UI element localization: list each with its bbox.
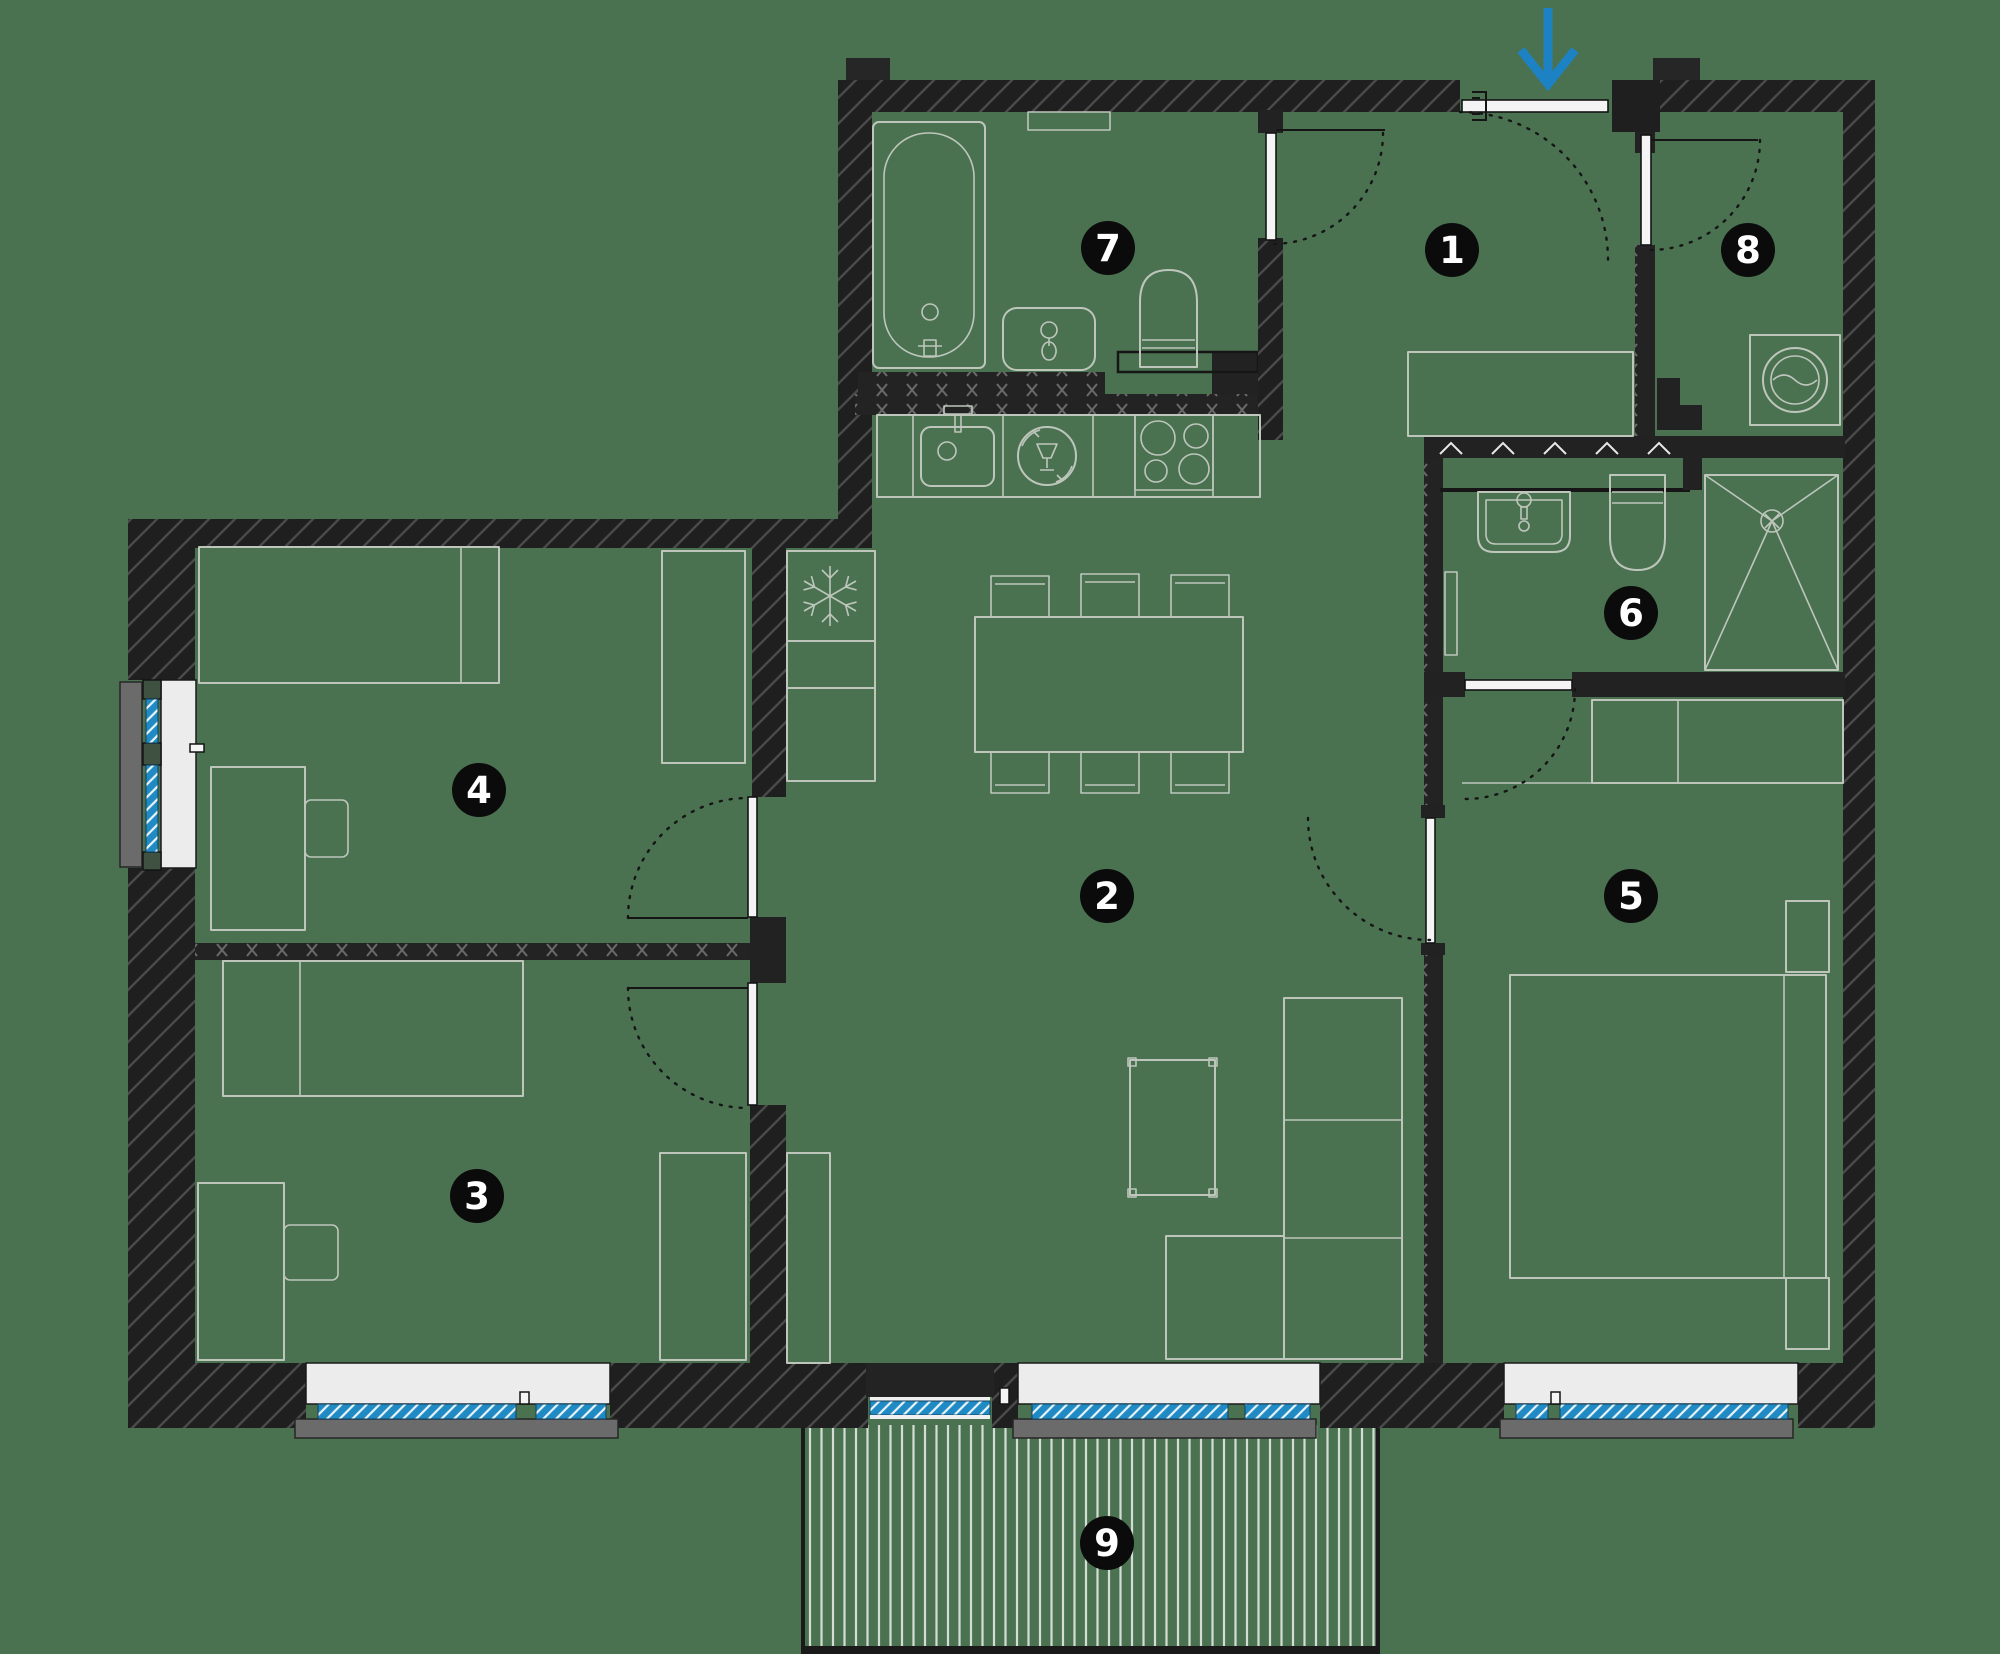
room-badge-7: 7 [1081, 221, 1135, 275]
window-handle [520, 1392, 529, 1404]
partition-living-room5 [1424, 697, 1443, 805]
room-badge-3: 3 [450, 1169, 504, 1223]
window-room3 [295, 1363, 618, 1438]
bath6-pillar [1683, 458, 1702, 490]
partition-bath7 [858, 372, 1105, 394]
floor-plan-page: 1 2 3 4 5 6 7 8 [0, 0, 2000, 1654]
window-slider-living [1000, 1363, 1320, 1438]
partition-central-lower [750, 1105, 786, 1363]
exterior-wall-top-left [838, 80, 1460, 112]
room-number-label: 5 [1618, 875, 1644, 918]
door-jamb [1421, 943, 1445, 955]
entrance-column [1612, 80, 1660, 132]
partition-bath6-bottom [1572, 672, 1845, 697]
partition-living-room5 [1424, 955, 1443, 1363]
door-jamb [1421, 805, 1445, 818]
partition-bath6-top [1424, 436, 1845, 458]
room-number-label: 8 [1735, 229, 1761, 272]
window-left [120, 680, 204, 870]
room-number-label: 9 [1094, 1522, 1120, 1565]
partition-room8 [1635, 245, 1655, 436]
partition-central-jamb [750, 917, 786, 983]
exterior-wall-bottom [1320, 1363, 1504, 1428]
partition-central-upper [752, 548, 786, 797]
room-number-label: 4 [466, 769, 492, 812]
floor-plan-canvas: 1 2 3 4 5 6 7 8 [0, 0, 2000, 1654]
window-room5 [1500, 1363, 1798, 1438]
exterior-wall-left [128, 868, 195, 1428]
room-badge-5: 5 [1604, 869, 1658, 923]
partition-bath6-bottom [1424, 672, 1465, 697]
window-fixed [866, 1363, 994, 1419]
room-number-label: 2 [1094, 875, 1120, 918]
room-badge-6: 6 [1604, 586, 1658, 640]
room-number-label: 1 [1439, 229, 1465, 272]
exterior-wall-left-top [128, 519, 872, 548]
window-handle [190, 744, 204, 752]
partition-hall-bath7 [1258, 238, 1283, 440]
partition-bath7 [855, 394, 1258, 415]
room-number-label: 3 [464, 1175, 490, 1218]
room-badge-1: 1 [1425, 223, 1479, 277]
exterior-wall-bottom [610, 1363, 868, 1428]
room-number-label: 7 [1095, 227, 1121, 270]
room-number-label: 6 [1618, 592, 1644, 635]
exterior-wall-bottom [128, 1363, 306, 1428]
room-badge-2: 2 [1080, 869, 1134, 923]
window-handle [1551, 1392, 1560, 1404]
room-badge-9: 9 [1080, 1516, 1134, 1570]
exterior-wall-left [128, 548, 195, 680]
exterior-wall-right [1843, 80, 1875, 1428]
exterior-wall-bottom [1798, 1363, 1875, 1428]
room-badge-4: 4 [452, 763, 506, 817]
window-handle [1000, 1388, 1009, 1404]
exterior-wall-upper-left [838, 80, 872, 548]
room-badge-8: 8 [1721, 223, 1775, 277]
partition-rooms-3-4 [195, 943, 750, 960]
